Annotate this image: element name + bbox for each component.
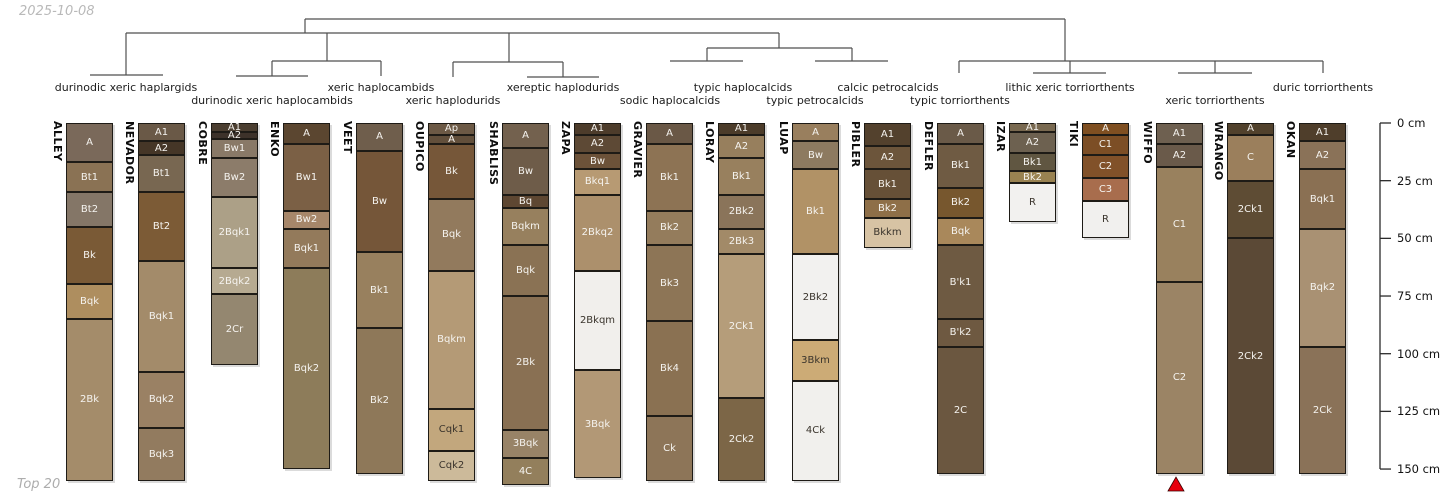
profile-name-loray: LORAY — [703, 121, 716, 163]
profile-name-izar: IZAR — [994, 121, 1007, 152]
horizon-loray-2bk2: 2Bk2 — [718, 195, 765, 230]
horizon-wrango-2ck1: 2Ck1 — [1227, 181, 1274, 239]
horizon-nevador-bt1: Bt1 — [138, 155, 185, 192]
horizon-zapa-3bqk: 3Bqk — [574, 370, 621, 478]
horizon-defler-bk2: Bk2 — [937, 188, 984, 218]
horizon-zapa-bkq1: Bkq1 — [574, 169, 621, 194]
horizon-okan-a2: A2 — [1299, 141, 1346, 169]
horizon-oupico-cqk2: Cqk2 — [428, 451, 475, 481]
depth-tick-label-25: 25 cm — [1397, 174, 1433, 188]
profile-column-pibler: A1A2Bk1Bk2Bkkm — [864, 123, 911, 248]
horizon-luap-4ck: 4Ck — [792, 381, 839, 480]
horizon-defler-a: A — [937, 123, 984, 144]
horizon-nevador-bqk3: Bqk3 — [138, 428, 185, 481]
profile-name-oupico: OUPICO — [413, 121, 426, 172]
horizon-zapa-bw: Bw — [574, 153, 621, 169]
horizon-pibler-bkkm: Bkkm — [864, 218, 911, 248]
profile-column-wiffo: A1A2C1C2 — [1156, 123, 1203, 474]
horizon-veet-bw: Bw — [356, 151, 403, 253]
horizon-luap-3bkm: 3Bkm — [792, 340, 839, 382]
horizon-loray-bk1: Bk1 — [718, 158, 765, 195]
profile-column-gravier: ABk1Bk2Bk3Bk4Ck — [646, 123, 693, 481]
horizon-pibler-a2: A2 — [864, 146, 911, 169]
profile-name-veet: VEET — [341, 121, 354, 154]
horizon-zapa-2bkq2: 2Bkq2 — [574, 195, 621, 271]
horizon-shabliss-4c: 4C — [502, 458, 549, 486]
horizon-gravier-bk3: Bk3 — [646, 245, 693, 321]
horizon-cobre-2bqk2: 2Bqk2 — [211, 268, 258, 293]
horizon-gravier-bk2: Bk2 — [646, 211, 693, 246]
horizon-cobre-a2: A2 — [211, 132, 258, 139]
horizon-okan-bqk1: Bqk1 — [1299, 169, 1346, 229]
profile-name-enko: ENKO — [268, 121, 281, 157]
horizon-defler-bk1: Bk1 — [937, 144, 984, 188]
profile-name-tiki: TIKI — [1067, 121, 1080, 147]
horizon-wrango-2ck2: 2Ck2 — [1227, 238, 1274, 473]
horizon-veet-bk1: Bk1 — [356, 252, 403, 328]
horizon-shabliss-bq: Bq — [502, 195, 549, 209]
profile-name-cobre: COBRE — [196, 121, 209, 165]
depth-tick-label-75: 75 cm — [1397, 289, 1433, 303]
horizon-okan-a1: A1 — [1299, 123, 1346, 141]
horizon-cobre-2cr: 2Cr — [211, 294, 258, 366]
profile-column-okan: A1A2Bqk1Bqk22Ck — [1299, 123, 1346, 474]
horizon-luap-bk1: Bk1 — [792, 169, 839, 254]
horizon-izar-bk1: Bk1 — [1009, 153, 1056, 171]
profile-column-izar: A1A2Bk1Bk2R — [1009, 123, 1056, 222]
horizon-nevador-bt2: Bt2 — [138, 192, 185, 261]
horizon-pibler-bk2: Bk2 — [864, 199, 911, 217]
profile-name-okan: OKAN — [1284, 121, 1297, 159]
horizon-nevador-bqk1: Bqk1 — [138, 261, 185, 372]
horizon-nevador-bqk2: Bqk2 — [138, 372, 185, 427]
horizon-shabliss-bqk: Bqk — [502, 245, 549, 296]
horizon-tiki-c3: C3 — [1082, 178, 1129, 201]
profile-name-wrango: WRANGO — [1212, 121, 1225, 181]
profile-name-zapa: ZAPA — [559, 121, 572, 155]
horizon-loray-a2: A2 — [718, 135, 765, 158]
horizon-gravier-bk1: Bk1 — [646, 144, 693, 211]
profile-column-oupico: ApABkBqkBqkmCqk1Cqk2 — [428, 123, 475, 481]
horizon-veet-a: A — [356, 123, 403, 151]
horizon-defler-bk1: B'k1 — [937, 245, 984, 319]
profile-column-luap: ABwBk12Bk23Bkm4Ck — [792, 123, 839, 481]
horizon-gravier-bk4: Bk4 — [646, 321, 693, 416]
horizon-zapa-a1: A1 — [574, 123, 621, 135]
horizon-shabliss-3bqk: 3Bqk — [502, 430, 549, 458]
depth-tick-label-50: 50 cm — [1397, 231, 1433, 245]
horizon-nevador-a1: A1 — [138, 123, 185, 141]
depth-tick-label-125: 125 cm — [1397, 404, 1440, 418]
profile-name-gravier: GRAVIER — [631, 121, 644, 178]
horizon-izar-r: R — [1009, 183, 1056, 222]
profile-name-pibler: PIBLER — [849, 121, 862, 168]
profile-column-nevador: A1A2Bt1Bt2Bqk1Bqk2Bqk3 — [138, 123, 185, 481]
horizon-alley-bk: Bk — [66, 227, 113, 285]
horizon-alley-bt1: Bt1 — [66, 162, 113, 192]
horizon-tiki-r: R — [1082, 201, 1129, 238]
horizon-luap-bw: Bw — [792, 141, 839, 169]
horizon-gravier-a: A — [646, 123, 693, 144]
horizon-cobre-2bqk1: 2Bqk1 — [211, 197, 258, 269]
horizon-pibler-bk1: Bk1 — [864, 169, 911, 199]
soil-profile-figure: 2025-10-08 durinodic xeric haplargidsdur… — [0, 0, 1450, 500]
profile-name-shabliss: SHABLISS — [487, 121, 500, 185]
horizon-alley-bt2: Bt2 — [66, 192, 113, 227]
horizon-loray-a1: A1 — [718, 123, 765, 135]
horizon-wrango-c: C — [1227, 135, 1274, 181]
horizon-wrango-a: A — [1227, 123, 1274, 135]
horizon-zapa-a2: A2 — [574, 135, 621, 153]
horizon-gravier-ck: Ck — [646, 416, 693, 481]
horizon-enko-a: A — [283, 123, 330, 144]
profile-column-cobre: A1A2Bw1Bw22Bqk12Bqk22Cr — [211, 123, 258, 365]
profile-name-alley: ALLEY — [51, 121, 64, 162]
horizon-oupico-bk: Bk — [428, 144, 475, 199]
horizon-enko-bqk2: Bqk2 — [283, 268, 330, 469]
depth-tick-label-0: 0 cm — [1397, 116, 1426, 130]
horizon-cobre-bw2: Bw2 — [211, 158, 258, 197]
profile-column-shabliss: ABwBqBqkmBqk2Bk3Bqk4C — [502, 123, 549, 485]
profile-name-luap: LUAP — [777, 121, 790, 155]
horizon-pibler-a1: A1 — [864, 123, 911, 146]
taxon-label-xerictorriorthents: xeric torriorthents — [1055, 94, 1375, 107]
horizon-loray-2bk3: 2Bk3 — [718, 229, 765, 254]
horizon-izar-bk2: Bk2 — [1009, 171, 1056, 183]
horizon-defler-bk2: B'k2 — [937, 319, 984, 347]
horizon-oupico-bqkm: Bqkm — [428, 271, 475, 409]
horizon-shabliss-2bk: 2Bk — [502, 296, 549, 430]
horizon-alley-a: A — [66, 123, 113, 162]
horizon-izar-a1: A1 — [1009, 123, 1056, 132]
figure-footer: Top 20 — [17, 477, 60, 492]
horizon-zapa-2bkqm: 2Bkqm — [574, 271, 621, 370]
profile-column-veet: ABwBk1Bk2 — [356, 123, 403, 474]
horizon-defler-2c: 2C — [937, 347, 984, 474]
horizon-tiki-a: A — [1082, 123, 1129, 135]
depth-tick-label-150: 150 cm — [1397, 462, 1440, 476]
profile-name-nevador: NEVADOR — [123, 121, 136, 184]
horizon-wiffo-a1: A1 — [1156, 123, 1203, 144]
horizon-oupico-a: A — [428, 135, 475, 144]
horizon-tiki-c2: C2 — [1082, 155, 1129, 178]
profile-column-alley: ABt1Bt2BkBqk2Bk — [66, 123, 113, 481]
horizon-okan-2ck: 2Ck — [1299, 347, 1346, 474]
horizon-oupico-bqk: Bqk — [428, 199, 475, 271]
horizon-cobre-bw1: Bw1 — [211, 139, 258, 157]
profile-column-zapa: A1A2BwBkq12Bkq22Bkqm3Bqk — [574, 123, 621, 478]
horizon-izar-a2: A2 — [1009, 132, 1056, 153]
horizon-enko-bw2: Bw2 — [283, 211, 330, 229]
horizon-shabliss-bw: Bw — [502, 148, 549, 194]
horizon-wiffo-c2: C2 — [1156, 282, 1203, 473]
horizon-luap-a: A — [792, 123, 839, 141]
profile-name-wiffo: WIFFO — [1141, 121, 1154, 164]
figure-layer: durinodic xeric haplargidsdurinodic xeri… — [0, 0, 1450, 500]
horizon-oupico-cqk1: Cqk1 — [428, 409, 475, 451]
horizon-tiki-c1: C1 — [1082, 135, 1129, 156]
horizon-nevador-a2: A2 — [138, 141, 185, 155]
horizon-alley-2bk: 2Bk — [66, 319, 113, 480]
horizon-veet-bk2: Bk2 — [356, 328, 403, 473]
horizon-loray-2ck1: 2Ck1 — [718, 254, 765, 397]
depth-tick-label-100: 100 cm — [1397, 347, 1440, 361]
profile-column-tiki: AC1C2C3R — [1082, 123, 1129, 238]
horizon-wiffo-a2: A2 — [1156, 144, 1203, 167]
horizon-wiffo-c1: C1 — [1156, 167, 1203, 282]
horizon-enko-bw1: Bw1 — [283, 144, 330, 211]
profile-name-defler: DEFLER — [922, 121, 935, 171]
horizon-loray-2ck2: 2Ck2 — [718, 398, 765, 481]
horizon-shabliss-a: A — [502, 123, 549, 148]
horizon-luap-2bk2: 2Bk2 — [792, 254, 839, 339]
horizon-defler-bqk: Bqk — [937, 218, 984, 246]
profile-column-wrango: AC2Ck12Ck2 — [1227, 123, 1274, 474]
profile-column-defler: ABk1Bk2BqkB'k1B'k22C — [937, 123, 984, 474]
profile-column-loray: A1A2Bk12Bk22Bk32Ck12Ck2 — [718, 123, 765, 481]
horizon-okan-bqk2: Bqk2 — [1299, 229, 1346, 347]
horizon-alley-bqk: Bqk — [66, 284, 113, 319]
profile-column-enko: ABw1Bw2Bqk1Bqk2 — [283, 123, 330, 469]
horizon-shabliss-bqkm: Bqkm — [502, 208, 549, 245]
taxon-label-durictorriorthents: duric torriorthents — [1163, 81, 1450, 94]
horizon-enko-bqk1: Bqk1 — [283, 229, 330, 268]
